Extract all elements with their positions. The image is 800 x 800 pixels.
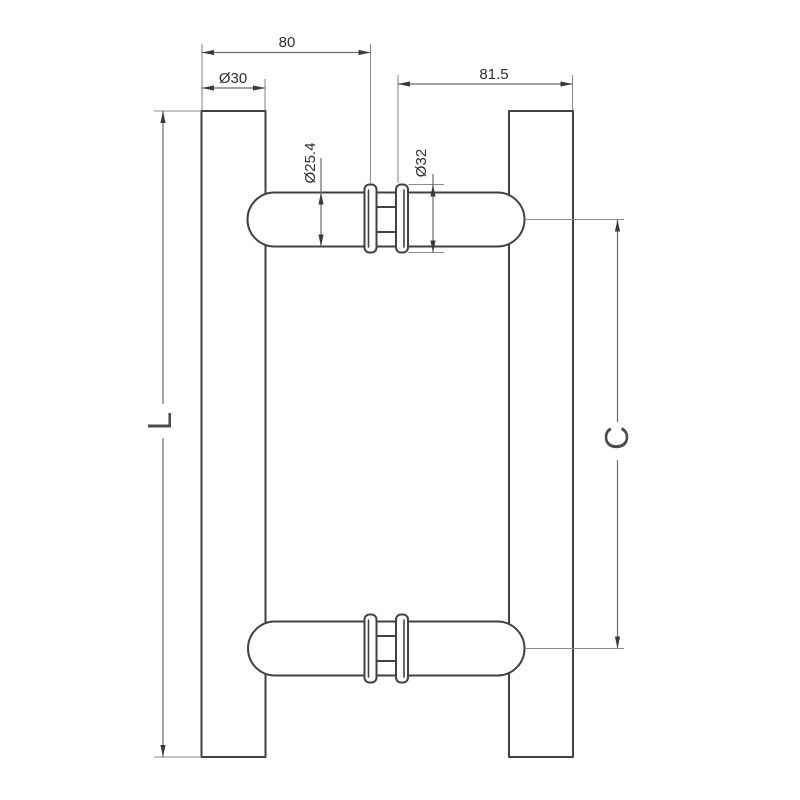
dimension-text-d25-4: Ø25.4 xyxy=(302,143,319,184)
arrowhead-up xyxy=(160,111,165,123)
dimension-text-d30: Ø30 xyxy=(219,70,247,87)
arrowhead-left xyxy=(202,50,214,55)
top-spindle xyxy=(377,207,397,232)
dimension-overall-length: L xyxy=(141,111,201,757)
dimension-text-C: C xyxy=(598,426,635,450)
arrowhead-left xyxy=(398,81,410,86)
dimension-post-diameter: Ø30 xyxy=(202,70,265,110)
bottom-right-rose xyxy=(396,615,408,683)
arrowhead-up xyxy=(615,220,620,232)
arrowhead-left xyxy=(202,85,214,90)
arrowhead-right xyxy=(253,85,265,90)
drawing-page: 80 Ø30 81.5 Ø25.4 xyxy=(0,0,800,800)
top-left-rose xyxy=(365,185,377,253)
arrowhead-right xyxy=(561,81,573,86)
arrowhead-up xyxy=(430,185,435,197)
arrowhead-down xyxy=(615,637,620,649)
arrowhead-down xyxy=(160,745,165,757)
dimension-text-81-5: 81.5 xyxy=(479,66,508,83)
handle-assembly xyxy=(202,111,574,757)
dimension-text-d32: Ø32 xyxy=(413,149,430,177)
bottom-spindle xyxy=(377,636,397,661)
top-right-rose xyxy=(396,185,408,253)
arrowhead-right xyxy=(359,50,371,55)
bottom-left-rose xyxy=(365,615,377,683)
dimension-text-L: L xyxy=(141,412,178,430)
technical-drawing-canvas: 80 Ø30 81.5 Ø25.4 xyxy=(0,0,800,800)
dimension-text-80: 80 xyxy=(279,34,296,51)
